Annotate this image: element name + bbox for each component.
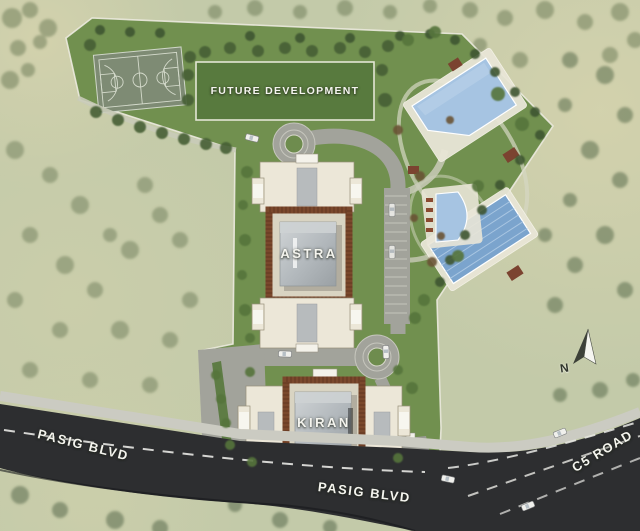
car <box>278 351 291 357</box>
car <box>383 345 389 358</box>
site-plan-canvas <box>0 0 640 531</box>
astra-north-canopy <box>296 154 318 163</box>
basketball-court <box>93 47 186 113</box>
car <box>389 246 395 259</box>
kiddie-pool <box>421 183 483 249</box>
future-development-field <box>196 62 374 120</box>
astra-south-canopy <box>296 344 318 352</box>
car <box>389 204 395 217</box>
astra-building <box>252 154 362 352</box>
site-plan: FUTURE DEVELOPMENT ASTRA KIRAN PASIG BLV… <box>0 0 640 531</box>
central-roundabout <box>355 335 399 379</box>
